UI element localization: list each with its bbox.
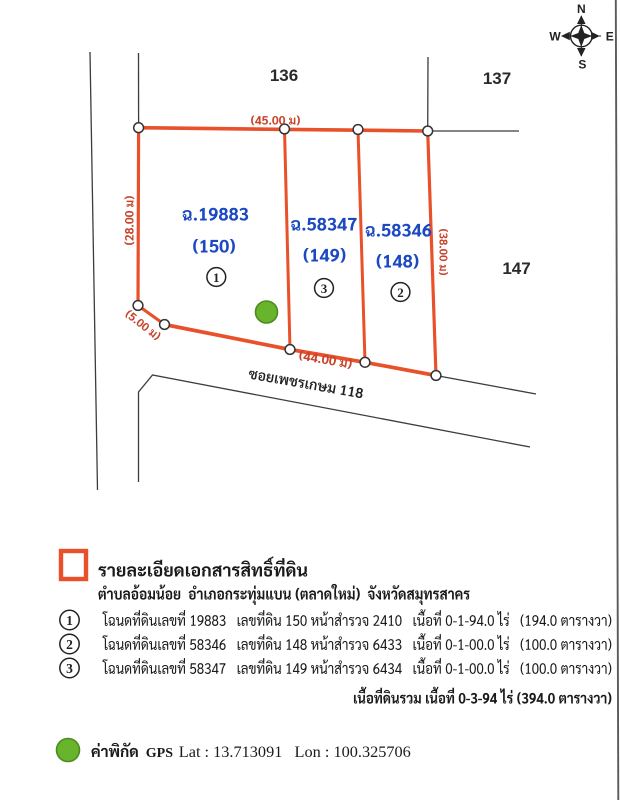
svg-text:N: N — [577, 2, 586, 16]
svg-text:GPS: GPS — [146, 746, 173, 761]
svg-text:147: 147 — [502, 259, 530, 278]
svg-text:3: 3 — [321, 281, 328, 296]
svg-text:Lat : 13.713091 Lon : 100.32: Lat : 13.713091 Lon : 100.325706 — [179, 742, 411, 761]
svg-text:137: 137 — [483, 69, 511, 88]
svg-text:1: 1 — [66, 613, 73, 628]
svg-text:2: 2 — [66, 637, 73, 652]
svg-text:136: 136 — [270, 66, 298, 85]
svg-text:1: 1 — [213, 270, 220, 285]
svg-text:2: 2 — [397, 285, 404, 300]
svg-text:3: 3 — [66, 661, 73, 676]
svg-text:S: S — [578, 58, 586, 72]
svg-text:W: W — [549, 30, 561, 44]
svg-text:E: E — [606, 30, 614, 44]
